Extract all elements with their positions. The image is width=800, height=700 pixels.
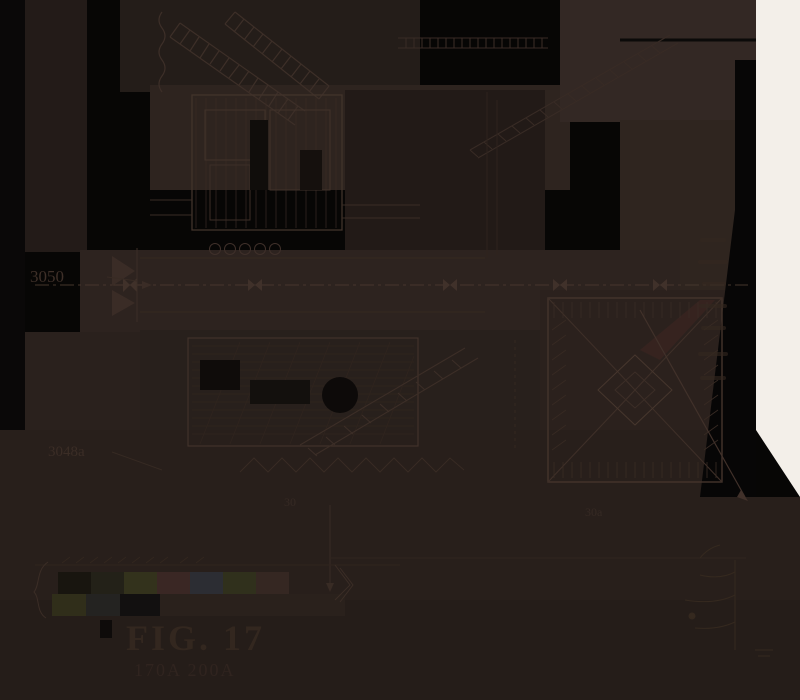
solid-core	[250, 380, 310, 404]
scale-segment	[223, 572, 256, 594]
scale-segment	[190, 572, 223, 594]
label-smudge	[700, 376, 726, 380]
patch	[0, 0, 25, 430]
reference-label: 30	[284, 495, 296, 509]
patch	[345, 90, 545, 260]
caption-tick	[100, 620, 112, 638]
patch	[560, 0, 756, 122]
scale-segment	[157, 572, 190, 594]
figure-caption-subline: 170A 200A	[134, 660, 236, 680]
solid-core	[250, 120, 268, 190]
patent-drawing: 3050 3048a 30 30a FIG.	[0, 0, 800, 700]
label-smudge	[702, 282, 726, 286]
scale-segment	[124, 572, 157, 594]
reference-label: 3050	[30, 267, 64, 286]
scale-segment	[86, 594, 120, 616]
scale-segment	[120, 594, 160, 616]
paper-white-strip	[756, 0, 800, 497]
node-dot	[689, 613, 695, 619]
scale-segment	[256, 572, 289, 594]
scale-segment	[52, 594, 86, 616]
scale-segment	[58, 572, 91, 594]
scale-segment	[160, 594, 345, 616]
color-scale-row2	[52, 594, 345, 616]
solid-core	[300, 150, 322, 190]
color-scale-row1	[58, 572, 289, 594]
label-smudge	[700, 238, 726, 242]
label-smudge	[698, 352, 728, 356]
reference-label: 30a	[585, 505, 603, 519]
label-smudge	[698, 260, 728, 264]
label-smudge	[699, 304, 727, 308]
label-smudge	[701, 326, 726, 330]
patch	[120, 0, 420, 92]
figure-canvas: 3050 3048a 30 30a FIG.	[0, 0, 800, 700]
bore	[322, 377, 358, 413]
scale-segment	[91, 572, 124, 594]
figure-caption: FIG. 17	[126, 618, 265, 658]
solid-core	[200, 360, 240, 390]
reference-label: 3048a	[48, 444, 85, 460]
patch	[25, 0, 87, 252]
